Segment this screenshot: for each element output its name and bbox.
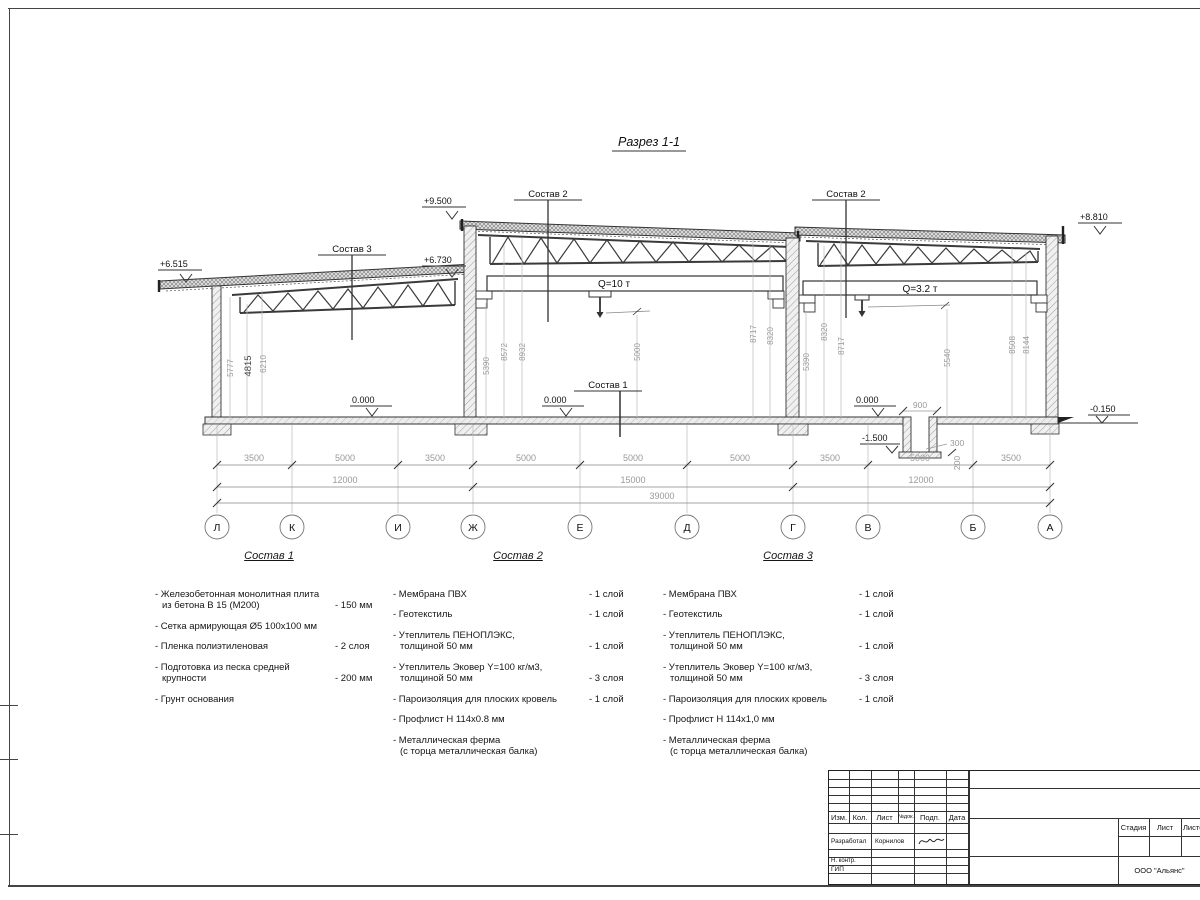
svg-text:900: 900 — [913, 400, 927, 410]
svg-text:8717: 8717 — [837, 337, 846, 355]
list-item: - Сетка армирующая Ø5 100x100 мм — [155, 621, 383, 633]
svg-text:Б: Б — [970, 522, 977, 534]
svg-text:-1.500: -1.500 — [862, 433, 888, 443]
list-item: - Железобетонная монолитная плита из бет… — [155, 589, 383, 612]
svg-text:0.000: 0.000 — [856, 395, 879, 405]
vertical-dim-labels: 5777 4815 6210 5390 8572 8932 5000 8717 … — [226, 323, 1031, 377]
svg-text:8144: 8144 — [1022, 336, 1031, 354]
stamp-name-developer: Корнилов — [873, 833, 916, 849]
svg-text:3500: 3500 — [425, 453, 445, 463]
left-truss — [232, 279, 458, 313]
svg-text:5000: 5000 — [623, 453, 643, 463]
frame-bottom-line — [8, 885, 1200, 887]
stamp-col-data: Дата — [946, 811, 968, 823]
svg-text:0.000: 0.000 — [544, 395, 567, 405]
stamp-sheet: Лист — [1149, 818, 1181, 836]
axis-bubbles — [205, 515, 1062, 539]
stamp-col-kol: Кол. — [849, 811, 871, 823]
dimension-labels: 3500 5000 3500 5000 5000 5000 3500 5000 … — [244, 453, 1021, 501]
svg-text:Состав 3: Состав 3 — [332, 244, 371, 255]
frame-tick — [0, 834, 18, 835]
stamp-stage: Стадия — [1118, 818, 1149, 836]
svg-text:3500: 3500 — [1001, 453, 1021, 463]
svg-text:В: В — [864, 522, 871, 534]
svg-text:5390: 5390 — [482, 357, 491, 375]
svg-text:3500: 3500 — [820, 453, 840, 463]
svg-text:5000: 5000 — [335, 453, 355, 463]
signature — [917, 834, 945, 848]
list-item: - Утеплитель ПЕНОПЛЭКС, толщиной 50 мм- … — [393, 630, 643, 653]
crane-capacity-label: Q=10 т — [598, 279, 631, 290]
company-name: ООО "Альянс" — [1118, 856, 1200, 884]
svg-text:+9.500: +9.500 — [424, 196, 452, 206]
svg-text:-0.150: -0.150 — [1090, 404, 1116, 414]
svg-text:4815: 4815 — [243, 355, 254, 376]
svg-text:12000: 12000 — [332, 475, 357, 485]
list-item: - Утеплитель ПЕНОПЛЭКС, толщиной 50 мм- … — [663, 630, 913, 653]
section-drawing: Разрез 1-1 — [0, 0, 1200, 548]
svg-text:8932: 8932 — [518, 343, 527, 361]
svg-text:5000: 5000 — [633, 343, 642, 361]
sostav3-list: Состав 3 - Мембрана ПВХ- 1 слой - Геотек… — [663, 551, 913, 767]
stamp-role-developer: Разработал — [829, 833, 873, 849]
svg-text:К: К — [289, 522, 296, 534]
stamp-role-ncontrol: Н. контр. — [829, 857, 873, 865]
sostav2-list: Состав 2 - Мембрана ПВХ- 1 слой - Геотек… — [393, 551, 643, 767]
svg-text:5777: 5777 — [226, 359, 235, 377]
elevation-symbols — [158, 207, 1130, 453]
svg-text:8572: 8572 — [500, 343, 509, 361]
svg-text:5390: 5390 — [802, 353, 811, 371]
frame-tick — [0, 705, 18, 706]
svg-text:Состав 2: Состав 2 — [528, 189, 567, 200]
svg-text:+6.515: +6.515 — [160, 259, 188, 269]
stamp-col-izm: Изм. — [829, 811, 849, 823]
list-item: - Геотекстиль- 1 слой — [663, 609, 913, 621]
svg-text:8320: 8320 — [766, 327, 775, 345]
crane-capacity-label: Q=3.2 т — [903, 284, 938, 295]
svg-text:+8.810: +8.810 — [1080, 212, 1108, 222]
svg-text:15000: 15000 — [620, 475, 645, 485]
list-item: - Грунт основания — [155, 694, 383, 706]
list-item: - Профлист Н 114х1,0 мм — [663, 714, 913, 726]
axis-labels: ЛК ИЖ ЕД ГВ БА — [214, 522, 1054, 534]
frame-tick — [0, 759, 18, 760]
stamp-role-gip: ГИП — [829, 865, 873, 873]
svg-text:Состав 2: Состав 2 — [826, 189, 865, 200]
svg-text:8717: 8717 — [749, 325, 758, 343]
list-item: - Геотекстиль- 1 слой — [393, 609, 643, 621]
svg-text:Ж: Ж — [468, 522, 478, 534]
svg-text:+6.730: +6.730 — [424, 255, 452, 265]
svg-text:И: И — [394, 522, 402, 534]
list-item: - Металлическая ферма (с торца металличе… — [393, 735, 643, 758]
list-item: - Утеплитель Эковер Y=100 кг/м3, толщино… — [663, 662, 913, 685]
svg-text:Л: Л — [214, 522, 221, 534]
pit-opening — [911, 416, 929, 426]
list-item: - Металлическая ферма (с торца металличе… — [663, 735, 913, 758]
list-item: - Мембрана ПВХ- 1 слой — [393, 589, 643, 601]
svg-text:5000: 5000 — [910, 453, 930, 463]
svg-text:Е: Е — [576, 522, 583, 534]
svg-text:3500: 3500 — [244, 453, 264, 463]
list-item: - Мембрана ПВХ- 1 слой — [663, 589, 913, 601]
svg-text:5540: 5540 — [943, 349, 952, 367]
svg-text:12000: 12000 — [908, 475, 933, 485]
svg-text:Состав 1: Состав 1 — [588, 380, 627, 391]
svg-text:Д: Д — [683, 522, 690, 534]
crane-beams: Q=10 т Q=3.2 т — [487, 276, 1037, 295]
sostav1-title: Состав 1 — [155, 551, 383, 563]
list-item: - Профлист Н 114x0.8 мм — [393, 714, 643, 726]
sostav2-title: Состав 2 — [393, 551, 643, 563]
list-item: - Подготовка из песка средней крупности-… — [155, 662, 383, 685]
list-item: - Пленка полиэтиленовая- 2 слоя — [155, 641, 383, 653]
list-item: - Пароизоляция для плоских кровель- 1 сл… — [393, 694, 643, 706]
drawing-title: Разрез 1-1 — [618, 135, 680, 149]
svg-text:8508: 8508 — [1008, 336, 1017, 354]
stamp-sheets: Листов — [1181, 818, 1200, 836]
stamp-col-list: Лист — [871, 811, 898, 823]
svg-text:А: А — [1046, 522, 1053, 534]
svg-text:Г: Г — [790, 522, 796, 534]
svg-text:6210: 6210 — [259, 355, 268, 373]
sostav1-list: Состав 1 - Железобетонная монолитная пли… — [155, 551, 383, 714]
list-item: - Пароизоляция для плоских кровель- 1 сл… — [663, 694, 913, 706]
svg-text:8320: 8320 — [820, 323, 829, 341]
svg-text:5000: 5000 — [730, 453, 750, 463]
list-item: - Утеплитель Эковер Y=100 кг/м3, толщино… — [393, 662, 643, 685]
svg-text:0.000: 0.000 — [352, 395, 375, 405]
svg-text:200: 200 — [952, 456, 962, 470]
stamp-col-podp: Подп. — [914, 811, 946, 823]
stamp-col-ndok: №док. — [898, 811, 914, 823]
svg-text:5000: 5000 — [516, 453, 536, 463]
svg-text:39000: 39000 — [649, 491, 674, 501]
ground-marker — [1058, 417, 1074, 423]
sostav3-title: Состав 3 — [663, 551, 913, 563]
svg-text:300: 300 — [950, 438, 964, 448]
axis-extension-lines — [217, 425, 1050, 513]
title-block: Изм. Кол. Лист №док. Подп. Дата Разработ… — [828, 770, 1200, 885]
